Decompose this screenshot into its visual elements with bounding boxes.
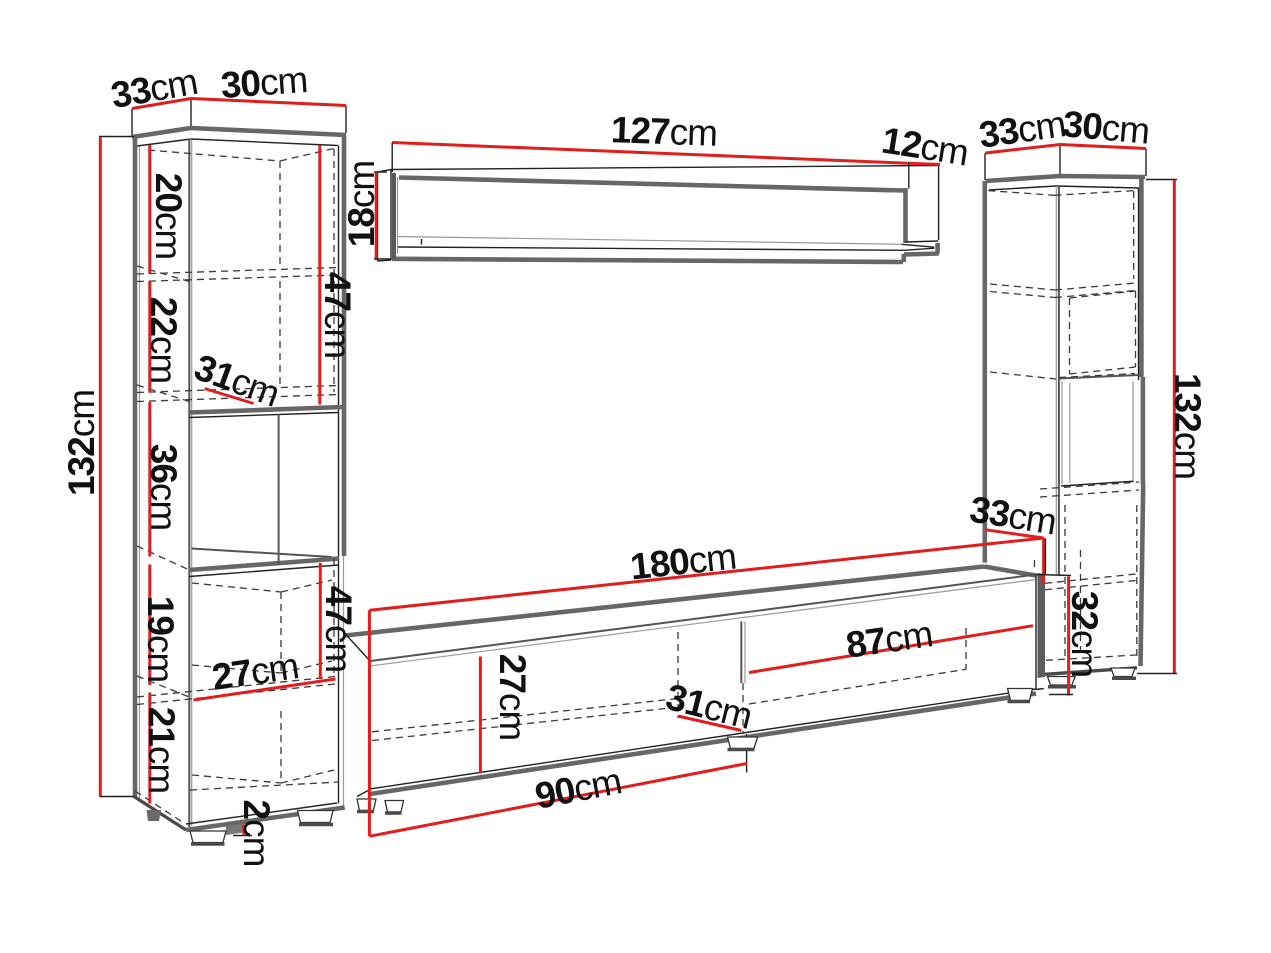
- svg-text:2cm: 2cm: [236, 800, 277, 867]
- svg-text:32cm: 32cm: [1064, 591, 1105, 677]
- svg-text:36cm: 36cm: [143, 444, 184, 530]
- svg-text:21cm: 21cm: [141, 707, 182, 793]
- svg-text:132cm: 132cm: [61, 390, 102, 496]
- svg-text:22cm: 22cm: [143, 297, 184, 383]
- svg-text:19cm: 19cm: [140, 596, 181, 682]
- svg-text:47cm: 47cm: [318, 586, 359, 672]
- svg-text:127cm: 127cm: [610, 109, 717, 154]
- svg-text:18cm: 18cm: [341, 161, 382, 247]
- svg-text:132cm: 132cm: [1167, 373, 1208, 479]
- svg-text:47cm: 47cm: [317, 272, 358, 358]
- svg-text:30cm: 30cm: [219, 59, 308, 106]
- svg-text:27cm: 27cm: [492, 654, 533, 740]
- svg-text:20cm: 20cm: [148, 173, 189, 259]
- svg-text:30cm: 30cm: [1061, 103, 1151, 151]
